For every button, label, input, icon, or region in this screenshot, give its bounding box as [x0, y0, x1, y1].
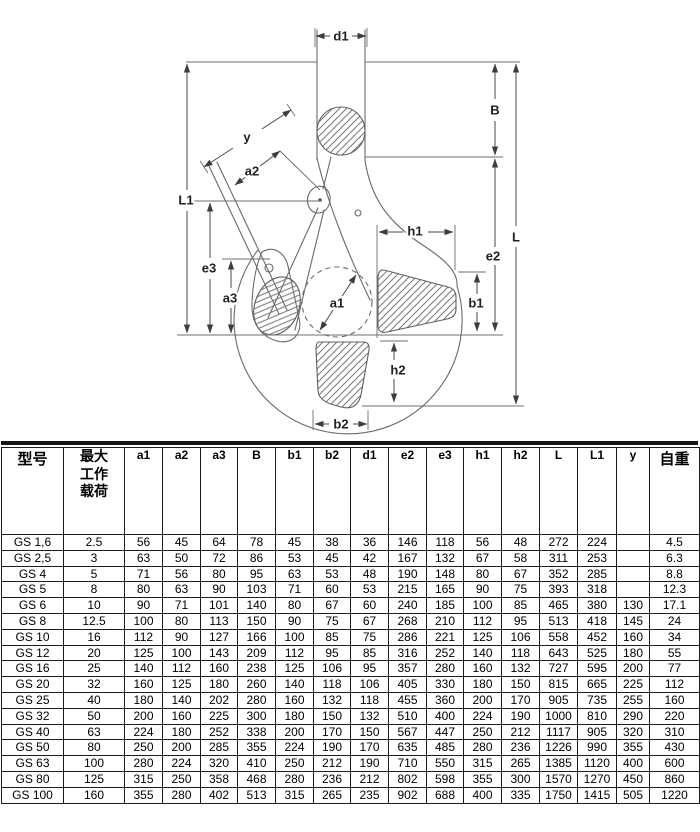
cell-value: 240	[389, 598, 427, 614]
cell-value: 45	[314, 550, 351, 566]
cell-value: 200	[125, 708, 163, 724]
cell-model: GS 40	[2, 724, 64, 740]
cell-value: 20	[64, 645, 125, 661]
cell-value: 125	[125, 645, 163, 661]
cell-value: 100	[64, 756, 125, 772]
dim-label-B: B	[490, 103, 499, 118]
col-header-a3: a3	[201, 448, 238, 535]
cell-model: GS 50	[2, 740, 64, 756]
cell-value: 125	[64, 771, 125, 787]
cell-value: 200	[276, 724, 314, 740]
cell-value: 380	[578, 598, 617, 614]
cell-value: 160	[276, 692, 314, 708]
cell-value: 352	[540, 566, 578, 582]
cell-value: 265	[502, 756, 540, 772]
cell-value: 55	[650, 645, 700, 661]
cell-value: 78	[238, 535, 276, 551]
cell-value: 252	[201, 724, 238, 740]
cell-model: GS 4	[2, 566, 64, 582]
cell-value: 513	[238, 787, 276, 803]
cell-model: GS 20	[2, 677, 64, 693]
cell-value: 95	[502, 613, 540, 629]
cell-value: 272	[540, 535, 578, 551]
cell-value: 212	[351, 771, 389, 787]
cell-value: 8	[64, 582, 125, 598]
cell-value: 220	[650, 708, 700, 724]
cell-value: 160	[64, 787, 125, 803]
cell-value: 265	[314, 787, 351, 803]
cell-value: 80	[201, 566, 238, 582]
table-row: GS 8012531525035846828023621280259835530…	[2, 771, 700, 787]
cell-value: 190	[389, 566, 427, 582]
cell-model: GS 1,6	[2, 535, 64, 551]
cell-value: 224	[464, 708, 502, 724]
cell-value: 60	[351, 598, 389, 614]
cell-value: 225	[201, 708, 238, 724]
cell-value: 221	[427, 629, 464, 645]
cell-value: 200	[163, 740, 201, 756]
cell-value: 53	[351, 582, 389, 598]
cell-value: 160	[201, 661, 238, 677]
cell-value: 80	[163, 613, 201, 629]
cell-value: 355	[464, 771, 502, 787]
cell-value: 318	[578, 582, 617, 598]
cell-value: 513	[540, 613, 578, 629]
cell-value: 180	[617, 645, 650, 661]
cell-value: 42	[351, 550, 389, 566]
cell-value: 286	[389, 629, 427, 645]
cell-value: 727	[540, 661, 578, 677]
cell-value: 225	[617, 677, 650, 693]
cell-value: 63	[125, 550, 163, 566]
cell-value: 60	[314, 582, 351, 598]
cell-value: 106	[314, 661, 351, 677]
col-header-d1: d1	[351, 448, 389, 535]
cell-value: 32	[64, 677, 125, 693]
cell-value: 1415	[578, 787, 617, 803]
cell-value: 280	[276, 771, 314, 787]
cell-value: 252	[427, 645, 464, 661]
col-header-L: L	[540, 448, 578, 535]
cell-value: 224	[276, 740, 314, 756]
cell-value: 400	[427, 708, 464, 724]
table-row: GS 2,536350728653454216713267583112536.3	[2, 550, 700, 566]
cell-value: 160	[125, 677, 163, 693]
cell-value: 190	[351, 756, 389, 772]
cell-value: 285	[578, 566, 617, 582]
cell-value: 90	[125, 598, 163, 614]
cell-model: GS 80	[2, 771, 64, 787]
cell-value: 170	[314, 724, 351, 740]
cell-value: 268	[389, 613, 427, 629]
cell-value: 400	[464, 787, 502, 803]
col-header-h2: h2	[502, 448, 540, 535]
cell-value: 132	[314, 692, 351, 708]
cell-value: 280	[464, 740, 502, 756]
cell-value: 235	[351, 787, 389, 803]
cell-value: 72	[201, 550, 238, 566]
cell-value: 48	[502, 535, 540, 551]
chain-link-section	[317, 107, 365, 155]
cell-value: 127	[201, 629, 238, 645]
cell-value: 410	[238, 756, 276, 772]
cell-value: 130	[617, 598, 650, 614]
cell-value: 170	[502, 692, 540, 708]
col-header-model: 型号	[2, 448, 64, 535]
col-header-e2: e2	[389, 448, 427, 535]
cell-value: 200	[617, 661, 650, 677]
cell-value: 112	[464, 613, 502, 629]
cell-value: 280	[238, 692, 276, 708]
cell-value: 315	[464, 756, 502, 772]
cell-value: 255	[617, 692, 650, 708]
header-row: 型号最大工作载荷a1a2a3Bb1b2d1e2e3h1h2LL1y自重	[2, 448, 700, 535]
cell-value: 525	[578, 645, 617, 661]
cell-value: 643	[540, 645, 578, 661]
cell-value: 5	[64, 566, 125, 582]
cell-model: GS 2,5	[2, 550, 64, 566]
cell-value: 735	[578, 692, 617, 708]
table-row: GS 2540180140202280160132118455360200170…	[2, 692, 700, 708]
cell-value: 6.3	[650, 550, 700, 566]
cell-value: 253	[578, 550, 617, 566]
cell-value: 200	[464, 692, 502, 708]
cell-value: 85	[314, 629, 351, 645]
cell-value: 160	[650, 692, 700, 708]
cell-model: GS 25	[2, 692, 64, 708]
cell-value: 150	[314, 708, 351, 724]
cell-value: 17.1	[650, 598, 700, 614]
cell-value: 80	[276, 598, 314, 614]
cell-value: 10	[64, 598, 125, 614]
cell-value: 106	[502, 629, 540, 645]
cell-value: 85	[351, 645, 389, 661]
cell-value: 180	[276, 708, 314, 724]
table-row: GS 1220125100143209112958531625214011864…	[2, 645, 700, 661]
cell-value: 40	[64, 692, 125, 708]
cell-value: 75	[351, 629, 389, 645]
cell-value: 400	[617, 756, 650, 772]
cell-value: 25	[64, 661, 125, 677]
spec-table-section: 型号最大工作载荷a1a2a3Bb1b2d1e2e3h1h2LL1y自重GS 1,…	[1, 441, 698, 804]
cell-value: 393	[540, 582, 578, 598]
cell-value: 558	[540, 629, 578, 645]
cell-model: GS 12	[2, 645, 64, 661]
cell-value: 50	[163, 550, 201, 566]
cell-value: 285	[201, 740, 238, 756]
cell-value: 4.5	[650, 535, 700, 551]
cell-value: 210	[427, 613, 464, 629]
dim-label-h2: h2	[390, 363, 405, 378]
cell-value: 146	[389, 535, 427, 551]
cell-value: 132	[427, 550, 464, 566]
cell-value: 355	[617, 740, 650, 756]
cell-value: 16	[64, 629, 125, 645]
cell-value	[617, 550, 650, 566]
cell-value: 320	[617, 724, 650, 740]
cell-value: 280	[163, 787, 201, 803]
cell-value: 224	[163, 756, 201, 772]
cell-value: 1120	[578, 756, 617, 772]
cell-value: 58	[502, 550, 540, 566]
dim-label-y: y	[243, 130, 251, 145]
cell-value: 67	[351, 613, 389, 629]
cell-value: 143	[201, 645, 238, 661]
cell-value: 77	[650, 661, 700, 677]
cell-value: 224	[125, 724, 163, 740]
cell-value: 100	[125, 613, 163, 629]
cell-value: 166	[238, 629, 276, 645]
dim-label-a1: a1	[330, 296, 344, 311]
cell-value: 212	[502, 724, 540, 740]
cell-value: 180	[163, 724, 201, 740]
cell-value: 63	[64, 724, 125, 740]
cell-value: 688	[427, 787, 464, 803]
cell-value	[617, 535, 650, 551]
cell-value: 80	[64, 740, 125, 756]
cell-value: 101	[201, 598, 238, 614]
dim-label-a2: a2	[245, 164, 259, 179]
cell-value: 132	[351, 708, 389, 724]
col-header-b2: b2	[314, 448, 351, 535]
cell-model: GS 5	[2, 582, 64, 598]
dim-label-b2: b2	[333, 417, 348, 432]
cell-value: 595	[578, 661, 617, 677]
cell-value: 315	[125, 771, 163, 787]
cell-value: 167	[389, 550, 427, 566]
cell-value: 250	[464, 724, 502, 740]
cell-value: 180	[125, 692, 163, 708]
cell-value: 447	[427, 724, 464, 740]
cell-value: 80	[125, 582, 163, 598]
cell-value: 71	[125, 566, 163, 582]
cell-value: 45	[163, 535, 201, 551]
hook-body-outline	[209, 30, 462, 434]
cell-value: 450	[617, 771, 650, 787]
cell-value: 148	[427, 566, 464, 582]
cell-value: 118	[427, 535, 464, 551]
cell-value: 63	[276, 566, 314, 582]
cell-value: 815	[540, 677, 578, 693]
cell-value: 48	[351, 566, 389, 582]
cell-value: 452	[578, 629, 617, 645]
cell-value: 202	[201, 692, 238, 708]
cell-value: 402	[201, 787, 238, 803]
cell-value: 24	[650, 613, 700, 629]
cell-value: 118	[314, 677, 351, 693]
col-header-e3: e3	[427, 448, 464, 535]
table-row: GS 3250200160225300180150132510400224190…	[2, 708, 700, 724]
cell-value: 150	[351, 724, 389, 740]
cell-value: 860	[650, 771, 700, 787]
cell-value: 140	[464, 645, 502, 661]
cell-value: 180	[464, 677, 502, 693]
col-header-L1: L1	[578, 448, 617, 535]
cell-value: 140	[125, 661, 163, 677]
spec-sheet-page: d1BLe2L1e3a3ya2a1h1b1h2b2 型号最大工作载荷a1a2a3…	[0, 0, 700, 832]
cell-value: 1750	[540, 787, 578, 803]
cell-value: 190	[314, 740, 351, 756]
cell-value: 360	[427, 692, 464, 708]
table-row: GS 812.510080113150907567268210112955134…	[2, 613, 700, 629]
table-row: GS 6310028022432041025021219071055031526…	[2, 756, 700, 772]
col-header-a1: a1	[125, 448, 163, 535]
cell-value: 67	[502, 566, 540, 582]
cell-value: 112	[650, 677, 700, 693]
cell-value: 56	[163, 566, 201, 582]
cell-value: 100	[276, 629, 314, 645]
cell-value: 95	[238, 566, 276, 582]
cell-value: 280	[427, 661, 464, 677]
cell-value: 132	[502, 661, 540, 677]
cell-value: 310	[650, 724, 700, 740]
cell-value: 71	[163, 598, 201, 614]
col-header-b1: b1	[276, 448, 314, 535]
col-header-a2: a2	[163, 448, 201, 535]
cell-value: 567	[389, 724, 427, 740]
table-row: GS 457156809563534819014880673522858.8	[2, 566, 700, 582]
cell-value: 100	[163, 645, 201, 661]
cell-value: 112	[163, 661, 201, 677]
cell-value: 90	[163, 629, 201, 645]
dim-label-e2: e2	[486, 249, 500, 264]
cell-value: 810	[578, 708, 617, 724]
cell-value: 45	[276, 535, 314, 551]
table-row: GS 5080250200285355224190170635485280236…	[2, 740, 700, 756]
cell-value: 145	[617, 613, 650, 629]
hook-side-section	[378, 270, 456, 332]
cell-value: 90	[276, 613, 314, 629]
cell-value: 250	[125, 740, 163, 756]
cell-value: 160	[163, 708, 201, 724]
col-header-weight: 自重	[650, 448, 700, 535]
cell-value: 56	[464, 535, 502, 551]
cell-value: 1220	[650, 787, 700, 803]
cell-value: 53	[314, 566, 351, 582]
cell-value: 315	[276, 787, 314, 803]
cell-value: 1226	[540, 740, 578, 756]
cell-value: 1000	[540, 708, 578, 724]
dim-label-h1: h1	[407, 224, 422, 239]
cell-value: 710	[389, 756, 427, 772]
cell-value: 190	[502, 708, 540, 724]
cell-value: 118	[502, 645, 540, 661]
cell-value: 36	[351, 535, 389, 551]
cell-value: 185	[427, 598, 464, 614]
col-header-max-load: 最大工作载荷	[64, 448, 125, 535]
cell-value: 53	[276, 550, 314, 566]
cell-value: 100	[464, 598, 502, 614]
cell-value: 71	[276, 582, 314, 598]
cell-value: 67	[464, 550, 502, 566]
cell-model: GS 16	[2, 661, 64, 677]
cell-value: 90	[464, 582, 502, 598]
cell-value: 75	[314, 613, 351, 629]
table-row: GS 1016112901271661008575286221125106558…	[2, 629, 700, 645]
cell-value: 80	[464, 566, 502, 582]
cell-value: 1570	[540, 771, 578, 787]
cell-value: 75	[502, 582, 540, 598]
cell-value: 140	[276, 677, 314, 693]
table-row: GS 1,62.55645647845383614611856482722244…	[2, 535, 700, 551]
cell-value: 338	[238, 724, 276, 740]
cell-model: GS 8	[2, 613, 64, 629]
cell-value: 150	[238, 613, 276, 629]
cell-value: 150	[502, 677, 540, 693]
cell-value: 990	[578, 740, 617, 756]
dim-label-L1: L1	[178, 193, 193, 208]
spec-table: 型号最大工作载荷a1a2a3Bb1b2d1e2e3h1h2LL1y自重GS 1,…	[1, 447, 700, 804]
cell-value: 635	[389, 740, 427, 756]
dim-label-e3: e3	[202, 261, 216, 276]
table-row: GS 1001603552804025133152652359026884003…	[2, 787, 700, 803]
cell-value	[617, 566, 650, 582]
cell-value: 3	[64, 550, 125, 566]
cell-value: 103	[238, 582, 276, 598]
cell-value: 485	[427, 740, 464, 756]
table-row: GS 4063224180252338200170150567447250212…	[2, 724, 700, 740]
cell-value: 550	[427, 756, 464, 772]
cell-value: 316	[389, 645, 427, 661]
cell-value: 1385	[540, 756, 578, 772]
cell-value: 112	[276, 645, 314, 661]
cell-value: 165	[427, 582, 464, 598]
cell-value: 160	[464, 661, 502, 677]
cell-value: 125	[163, 677, 201, 693]
cell-model: GS 10	[2, 629, 64, 645]
cell-value: 902	[389, 787, 427, 803]
cell-value: 140	[163, 692, 201, 708]
cell-value: 905	[540, 692, 578, 708]
cell-value: 330	[427, 677, 464, 693]
hook-tip-section	[316, 342, 369, 408]
cell-value: 802	[389, 771, 427, 787]
cell-value: 290	[617, 708, 650, 724]
cell-value: 125	[464, 629, 502, 645]
cell-value: 238	[238, 661, 276, 677]
cell-value: 320	[201, 756, 238, 772]
cell-value: 250	[276, 756, 314, 772]
cell-value: 224	[578, 535, 617, 551]
cell-value: 118	[351, 692, 389, 708]
col-header-B: B	[238, 448, 276, 535]
cell-value: 140	[238, 598, 276, 614]
cell-value: 355	[238, 740, 276, 756]
cell-value: 665	[578, 677, 617, 693]
cell-value: 418	[578, 613, 617, 629]
cell-value: 300	[238, 708, 276, 724]
cell-value: 1270	[578, 771, 617, 787]
cell-value: 600	[650, 756, 700, 772]
cell-value: 95	[314, 645, 351, 661]
cell-value: 64	[201, 535, 238, 551]
cell-value: 85	[502, 598, 540, 614]
cell-value: 95	[351, 661, 389, 677]
cell-value: 215	[389, 582, 427, 598]
cell-value	[617, 582, 650, 598]
table-row: GS 6109071101140806760240185100854653801…	[2, 598, 700, 614]
cell-value: 12.5	[64, 613, 125, 629]
cell-value: 905	[578, 724, 617, 740]
cell-value: 125	[276, 661, 314, 677]
cell-value: 86	[238, 550, 276, 566]
cell-value: 468	[238, 771, 276, 787]
table-row: GS 58806390103716053215165907539331812.3	[2, 582, 700, 598]
cell-value: 598	[427, 771, 464, 787]
cell-value: 300	[502, 771, 540, 787]
dim-label-d1: d1	[333, 29, 348, 44]
cell-value: 405	[389, 677, 427, 693]
